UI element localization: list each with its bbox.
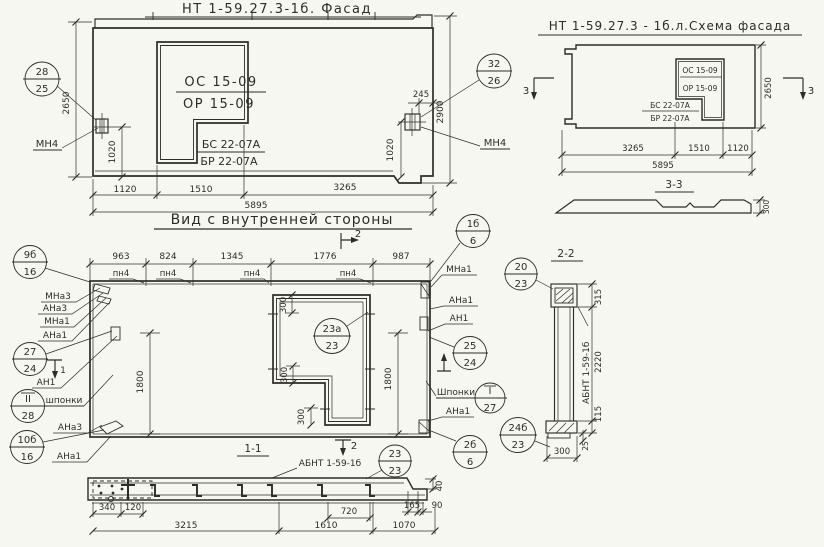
svg-text:3: 3 bbox=[523, 86, 529, 97]
svg-text:АНа1: АНа1 bbox=[449, 296, 473, 306]
svg-text:3215: 3215 bbox=[175, 521, 198, 531]
facade-title: НТ 1-59.27.3-1б. Фасад bbox=[182, 2, 372, 17]
svg-text:5895: 5895 bbox=[652, 161, 674, 171]
leader-line bbox=[272, 468, 297, 478]
svg-text:23а: 23а bbox=[323, 324, 342, 335]
svg-text:пн4: пн4 bbox=[244, 269, 261, 279]
svg-text:245: 245 bbox=[413, 90, 429, 100]
blueprint-page: НТ 1-59.27.3-1б. Фасад ОС 15-09 ОР 15-09… bbox=[0, 0, 824, 547]
section-2-2-title: 2-2 bbox=[557, 248, 574, 260]
leader-line bbox=[45, 268, 90, 282]
svg-text:28: 28 bbox=[36, 67, 49, 78]
interior-section-marker-left: 1 bbox=[47, 360, 66, 379]
interior-callout-25-24: 25 24 bbox=[429, 337, 488, 370]
svg-text:16: 16 bbox=[21, 452, 34, 463]
leader-line bbox=[426, 381, 436, 396]
svg-text:27: 27 bbox=[24, 347, 37, 358]
svg-text:987: 987 bbox=[392, 252, 409, 262]
svg-text:I: I bbox=[489, 386, 492, 397]
svg-text:2650: 2650 bbox=[62, 91, 72, 114]
svg-text:120: 120 bbox=[125, 503, 141, 513]
svg-text:27: 27 bbox=[484, 403, 497, 414]
interior-height-dimensions: 1800 1800 bbox=[136, 330, 408, 438]
facade-window-mark-top: ОС 15-09 bbox=[184, 75, 257, 90]
interior-view: Вид с внутренней стороны 963 824 1345 17… bbox=[9, 212, 550, 469]
drawing-canvas: НТ 1-59.27.3-1б. Фасад ОС 15-09 ОР 15-09… bbox=[0, 0, 824, 547]
svg-text:32: 32 bbox=[488, 59, 501, 70]
svg-text:1510: 1510 bbox=[190, 185, 213, 195]
facade-window-mark-bot2: БР 22-07А bbox=[200, 155, 258, 168]
interior-label-shponki-left: шпонки bbox=[46, 396, 83, 406]
scheme-section-marker-right: 3 bbox=[783, 78, 814, 100]
interior-window-dimensions: 300 300 300 bbox=[279, 292, 318, 429]
svg-text:24: 24 bbox=[464, 358, 477, 369]
svg-text:3265: 3265 bbox=[334, 183, 357, 193]
svg-text:6: 6 bbox=[470, 236, 476, 247]
svg-text:300: 300 bbox=[280, 367, 290, 383]
svg-text:АНа1: АНа1 bbox=[43, 331, 67, 341]
svg-text:3: 3 bbox=[808, 86, 814, 97]
interior-section-marker-top: 2 bbox=[341, 229, 361, 249]
section-3-3-profile bbox=[556, 200, 751, 213]
svg-text:23: 23 bbox=[512, 440, 525, 451]
section-3-3-dimension: 300 bbox=[753, 197, 771, 217]
svg-text:90: 90 bbox=[432, 501, 443, 511]
interior-callout-2b-6: 2б 6 bbox=[431, 431, 488, 469]
svg-text:АН1: АН1 bbox=[37, 378, 56, 388]
facade-dimensions: 2650 1020 245 2900 1020 1120 bbox=[62, 13, 457, 217]
svg-text:24: 24 bbox=[24, 364, 37, 375]
svg-text:2900: 2900 bbox=[436, 100, 446, 123]
svg-text:АНа1: АНа1 bbox=[57, 452, 81, 462]
interior-callout-9b16: 9б 16 bbox=[12, 246, 90, 283]
section-1-1-callout: 23 23 bbox=[366, 445, 412, 479]
svg-text:пн4: пн4 bbox=[113, 269, 130, 279]
svg-text:пн4: пн4 bbox=[160, 269, 177, 279]
svg-text:24б: 24б bbox=[509, 423, 528, 434]
leader-line bbox=[429, 337, 454, 347]
section-3-3-title: 3-3 bbox=[665, 179, 682, 191]
svg-text:115: 115 bbox=[594, 406, 604, 422]
svg-text:23: 23 bbox=[389, 449, 402, 460]
svg-text:АНа3: АНа3 bbox=[58, 423, 82, 433]
svg-text:9б: 9б bbox=[24, 250, 37, 261]
interior-panel bbox=[90, 281, 430, 437]
svg-text:720: 720 bbox=[341, 507, 357, 517]
svg-text:23: 23 bbox=[389, 466, 402, 477]
svg-text:3265: 3265 bbox=[622, 144, 644, 154]
interior-callout-24b-23: 24б 23 bbox=[499, 418, 550, 453]
svg-text:II: II bbox=[25, 394, 31, 405]
svg-text:1020: 1020 bbox=[386, 138, 396, 161]
svg-text:16: 16 bbox=[24, 267, 37, 278]
rebar-dots bbox=[98, 485, 124, 495]
svg-text:25: 25 bbox=[36, 84, 49, 95]
svg-text:23: 23 bbox=[326, 341, 339, 352]
facade-callout-right: 32 26 bbox=[421, 54, 512, 117]
scheme-window-mark-top: ОС 15-09 bbox=[682, 66, 718, 75]
svg-text:300: 300 bbox=[554, 447, 570, 457]
leader-line bbox=[84, 375, 113, 406]
svg-text:1345: 1345 bbox=[221, 252, 244, 262]
scheme-title: НТ 1-59.27.3 - 1б.л.Схема фасада bbox=[549, 19, 792, 33]
anchor-hook bbox=[108, 496, 113, 501]
svg-text:2220: 2220 bbox=[594, 351, 604, 373]
svg-text:340: 340 bbox=[99, 503, 115, 513]
svg-text:2б: 2б bbox=[464, 440, 477, 451]
svg-text:пн4: пн4 bbox=[340, 269, 357, 279]
interior-label-ana1-right-bottom: АНа1 bbox=[428, 407, 474, 421]
leader-line bbox=[431, 431, 456, 441]
svg-text:АНа1: АНа1 bbox=[446, 407, 470, 417]
svg-text:300: 300 bbox=[762, 200, 771, 215]
scheme-section-marker-left: 3 bbox=[523, 78, 554, 100]
scheme-window-mark-bot2: БР 22-07А bbox=[651, 114, 691, 123]
svg-text:1020: 1020 bbox=[108, 140, 118, 163]
leader-line bbox=[421, 127, 480, 146]
svg-text:1: 1 bbox=[60, 366, 66, 376]
interior-label-ana1-right: АНа1 bbox=[430, 296, 478, 309]
svg-text:25: 25 bbox=[581, 441, 590, 451]
interior-section-marker-bottom: 2 bbox=[335, 440, 357, 456]
svg-text:МН4: МН4 bbox=[36, 139, 59, 150]
svg-text:1120: 1120 bbox=[727, 144, 749, 154]
svg-text:МНа3: МНа3 bbox=[45, 292, 71, 302]
scheme-window-mark-bot: БС 22-07А bbox=[650, 101, 691, 110]
svg-text:300: 300 bbox=[279, 297, 289, 313]
svg-text:165: 165 bbox=[404, 501, 420, 511]
interior-window bbox=[273, 295, 370, 425]
interior-panel-inner bbox=[93, 284, 427, 434]
facade-anchor-label-right: МН4 bbox=[421, 127, 510, 149]
svg-text:1070: 1070 bbox=[393, 521, 416, 531]
facade-anchor-label-left: МН4 bbox=[33, 128, 98, 150]
svg-text:315: 315 bbox=[594, 289, 604, 305]
leader-line bbox=[535, 441, 550, 447]
interior-edge-details bbox=[93, 282, 429, 434]
svg-text:АНа3: АНа3 bbox=[43, 304, 67, 314]
interior-title: Вид с внутренней стороны bbox=[171, 212, 394, 228]
interior-section-marker-right bbox=[437, 353, 451, 371]
interior-window-ticks bbox=[268, 309, 375, 414]
interior-window-frame bbox=[277, 299, 367, 422]
svg-text:28: 28 bbox=[22, 411, 35, 422]
svg-text:АБНТ 1-59-1б: АБНТ 1-59-1б bbox=[299, 459, 362, 469]
facade-anchor-left bbox=[96, 113, 108, 139]
section-1-1-title: 1-1 bbox=[244, 443, 261, 455]
svg-text:2650: 2650 bbox=[764, 77, 774, 99]
leader-line bbox=[347, 312, 368, 326]
interior-label-mna3: МНа3 bbox=[41, 288, 100, 302]
interior-window-frame2 bbox=[280, 302, 363, 418]
section-1-1-profile bbox=[88, 478, 427, 503]
svg-text:1776: 1776 bbox=[314, 252, 337, 262]
leader-line bbox=[578, 307, 588, 326]
facade-window-mark-top2: ОР 15-09 bbox=[183, 97, 255, 112]
svg-text:26: 26 bbox=[488, 76, 501, 87]
svg-text:25: 25 bbox=[464, 341, 477, 352]
facade-window-mark-bot: БС 22-07А bbox=[202, 138, 261, 151]
svg-text:1120: 1120 bbox=[114, 185, 137, 195]
svg-text:824: 824 bbox=[159, 252, 176, 262]
svg-text:1800: 1800 bbox=[136, 370, 146, 393]
svg-text:1б: 1б bbox=[467, 219, 480, 230]
svg-text:МН4: МН4 bbox=[484, 138, 507, 149]
interior-label-an1-right: АН1 bbox=[428, 314, 473, 331]
section-2-2-callout: 20 23 bbox=[504, 258, 553, 290]
svg-text:1610: 1610 bbox=[315, 521, 338, 531]
section-3-3: 3-3 300 bbox=[556, 179, 771, 217]
svg-text:МНа1: МНа1 bbox=[446, 265, 472, 275]
facade-panel bbox=[93, 28, 433, 183]
interior-callout-window: 23а 23 bbox=[313, 312, 368, 354]
interior-label-ana1-bottom: АНа1 bbox=[52, 436, 111, 462]
svg-text:6: 6 bbox=[467, 457, 473, 468]
interior-callout-II-28: II 28 шпонки bbox=[10, 375, 113, 423]
section-1-1-panel-mark: АБНТ 1-59-1б bbox=[272, 459, 362, 478]
svg-text:963: 963 bbox=[112, 252, 129, 262]
section-1-1: 1-1 АБНТ 1-59-1б 23 23 bbox=[88, 443, 445, 535]
interior-label-mna1-right: МНа1 bbox=[431, 265, 477, 287]
svg-text:1510: 1510 bbox=[688, 144, 710, 154]
scheme-drawing: НТ 1-59.27.3 - 1б.л.Схема фасада ОС 15-0… bbox=[523, 19, 814, 176]
svg-text:20: 20 bbox=[515, 262, 528, 273]
rebar-marks bbox=[150, 485, 375, 496]
svg-text:40: 40 bbox=[435, 481, 445, 492]
interior-label-shponki-right: Шпонки bbox=[437, 388, 475, 398]
facade-callout-left: 28 25 bbox=[23, 62, 96, 120]
svg-text:МНа1: МНа1 bbox=[44, 317, 70, 327]
svg-text:10б: 10б bbox=[18, 435, 37, 446]
svg-text:300: 300 bbox=[297, 409, 307, 425]
svg-text:2: 2 bbox=[355, 229, 361, 240]
scheme-window-mark-top2: ОР 15-09 bbox=[683, 84, 718, 93]
svg-text:5895: 5895 bbox=[245, 201, 268, 211]
facade-drawing: НТ 1-59.27.3-1б. Фасад ОС 15-09 ОР 15-09… bbox=[23, 2, 512, 216]
svg-text:1800: 1800 bbox=[384, 367, 394, 390]
svg-text:23: 23 bbox=[515, 279, 528, 290]
svg-text:АН1: АН1 bbox=[450, 314, 469, 324]
section-2-2-panel-mark: АБНТ 1-59-1б bbox=[582, 341, 592, 404]
svg-text:2: 2 bbox=[351, 441, 357, 452]
